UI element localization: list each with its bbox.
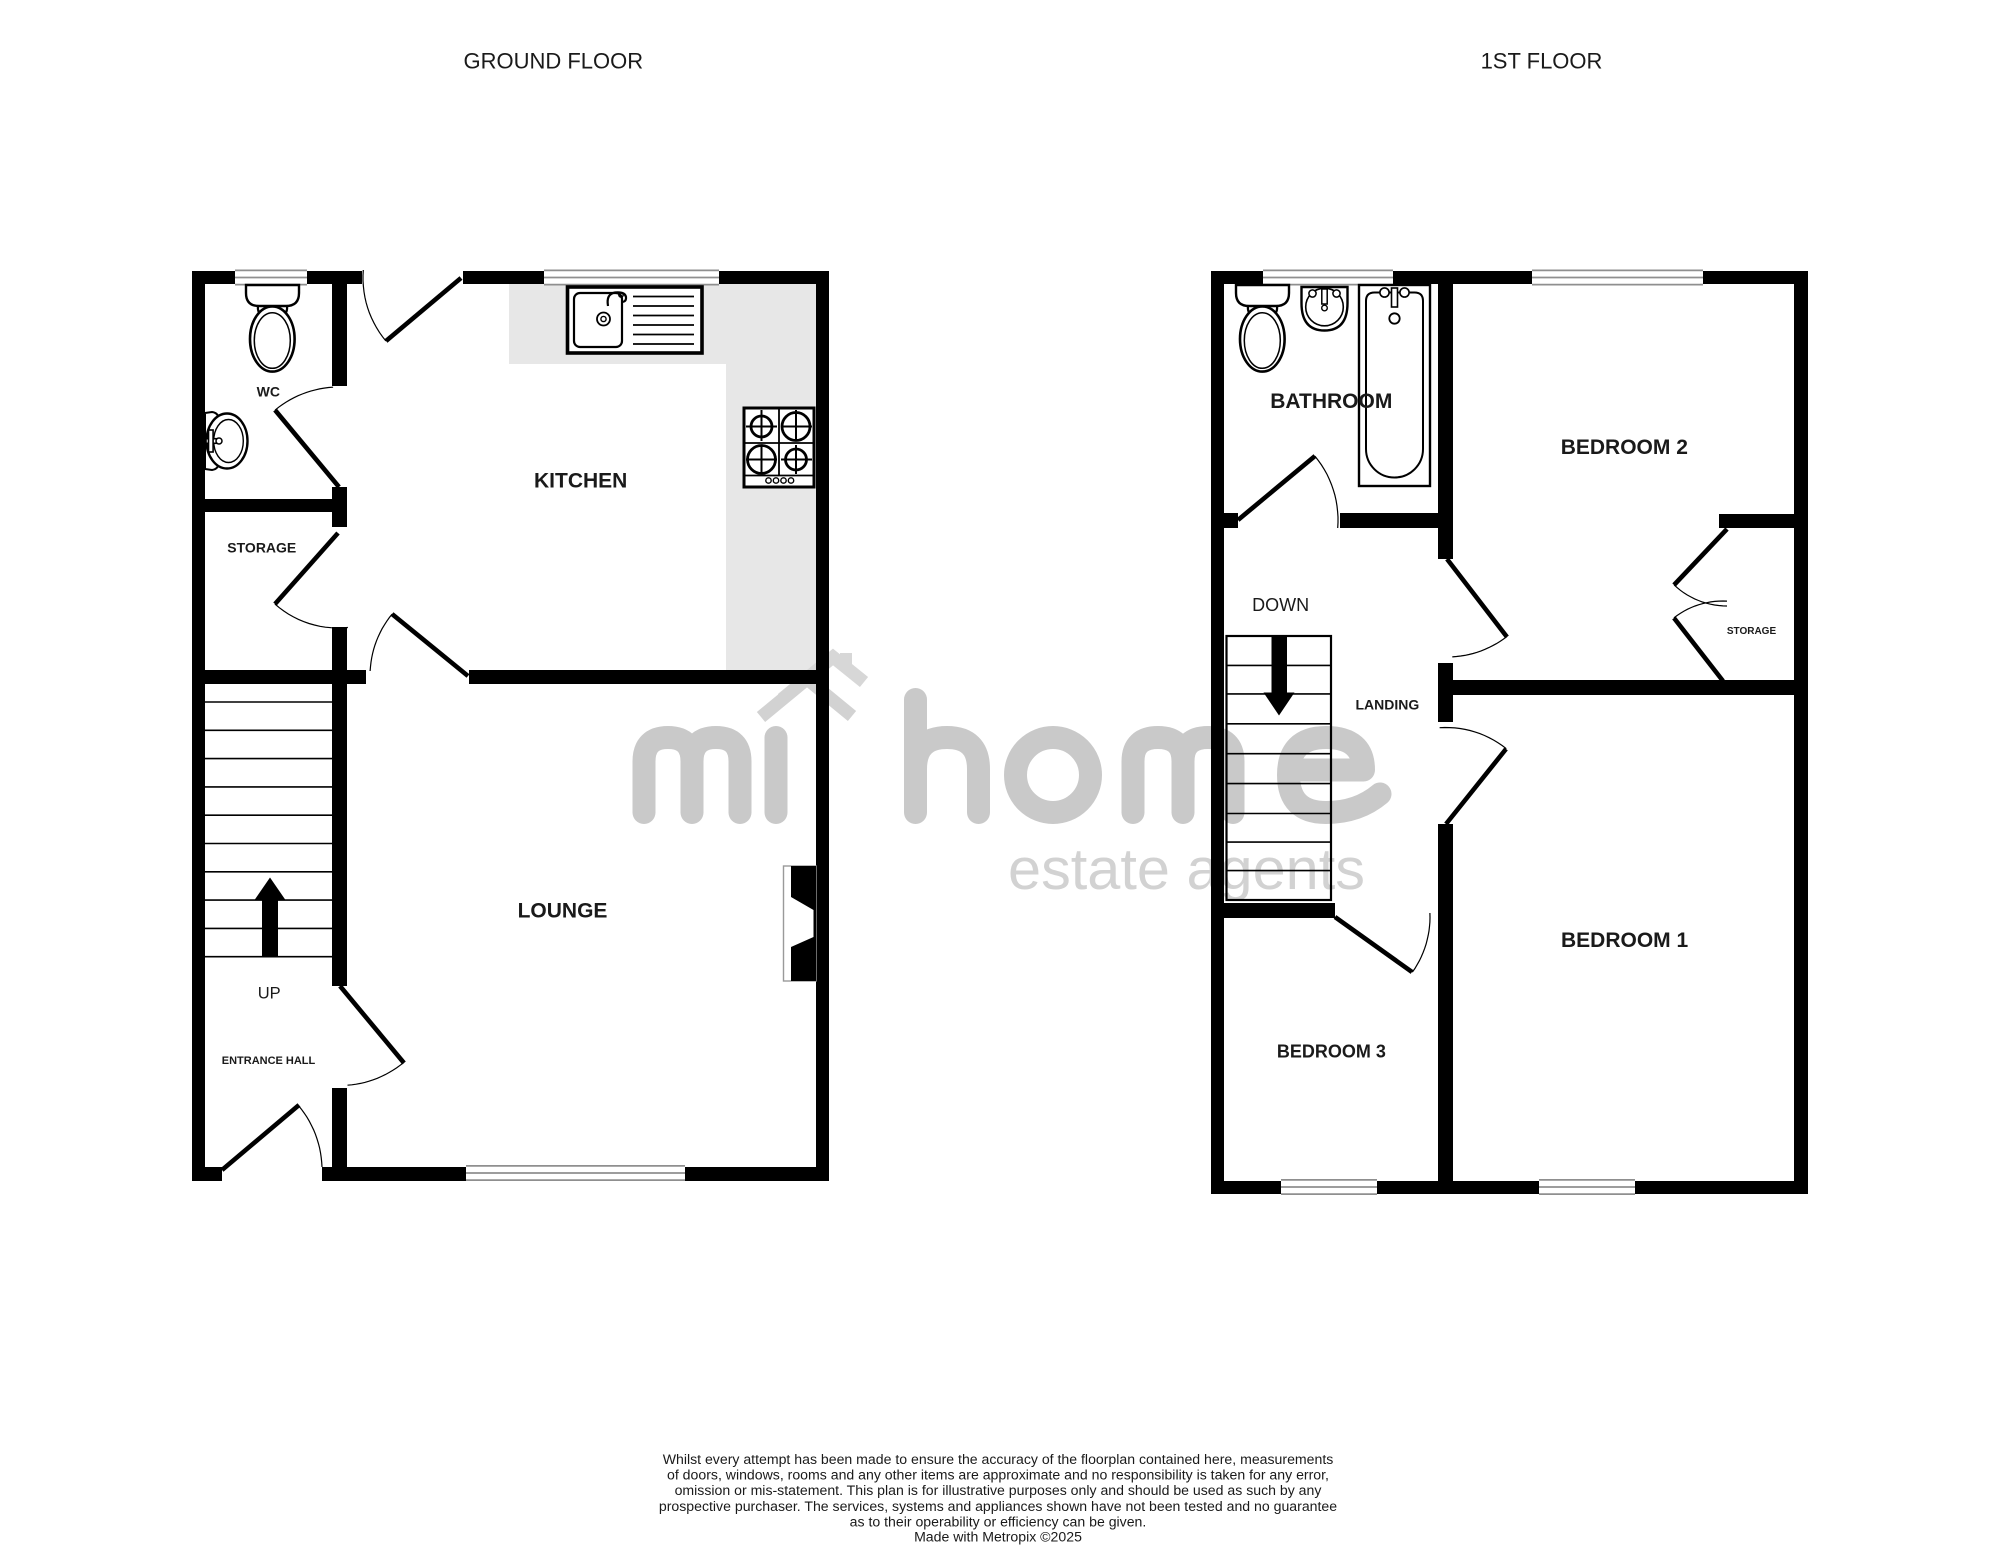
svg-text:of doors, windows, rooms and a: of doors, windows, rooms and any other i…: [667, 1467, 1329, 1483]
svg-text:estate agents: estate agents: [1008, 837, 1365, 902]
svg-text:prospective purchaser. The ser: prospective purchaser. The services, sys…: [659, 1498, 1337, 1514]
svg-text:omission or mis-statement. Thi: omission or mis-statement. This plan is …: [675, 1482, 1323, 1498]
svg-text:1ST FLOOR: 1ST FLOOR: [1481, 49, 1603, 74]
svg-text:BATHROOM: BATHROOM: [1270, 390, 1392, 413]
svg-text:LANDING: LANDING: [1356, 697, 1420, 713]
svg-text:STORAGE: STORAGE: [227, 540, 296, 556]
svg-text:DOWN: DOWN: [1252, 595, 1309, 615]
svg-text:Whilst every attempt has been: Whilst every attempt has been made to en…: [663, 1451, 1334, 1467]
svg-text:BEDROOM 2: BEDROOM 2: [1561, 436, 1688, 459]
svg-text:ENTRANCE HALL: ENTRANCE HALL: [222, 1055, 316, 1067]
svg-text:UP: UP: [258, 985, 281, 1003]
svg-text:GROUND FLOOR: GROUND FLOOR: [463, 49, 643, 74]
svg-text:as to their operability or eff: as to their operability or efficiency ca…: [850, 1513, 1147, 1529]
svg-text:BEDROOM 3: BEDROOM 3: [1277, 1042, 1386, 1062]
svg-text:KITCHEN: KITCHEN: [534, 470, 627, 493]
svg-text:STORAGE: STORAGE: [1727, 626, 1777, 637]
svg-text:LOUNGE: LOUNGE: [518, 900, 608, 923]
svg-text:BEDROOM 1: BEDROOM 1: [1561, 929, 1689, 952]
svg-text:WC: WC: [257, 384, 280, 400]
svg-text:Made with Metropix ©2025: Made with Metropix ©2025: [914, 1528, 1082, 1544]
